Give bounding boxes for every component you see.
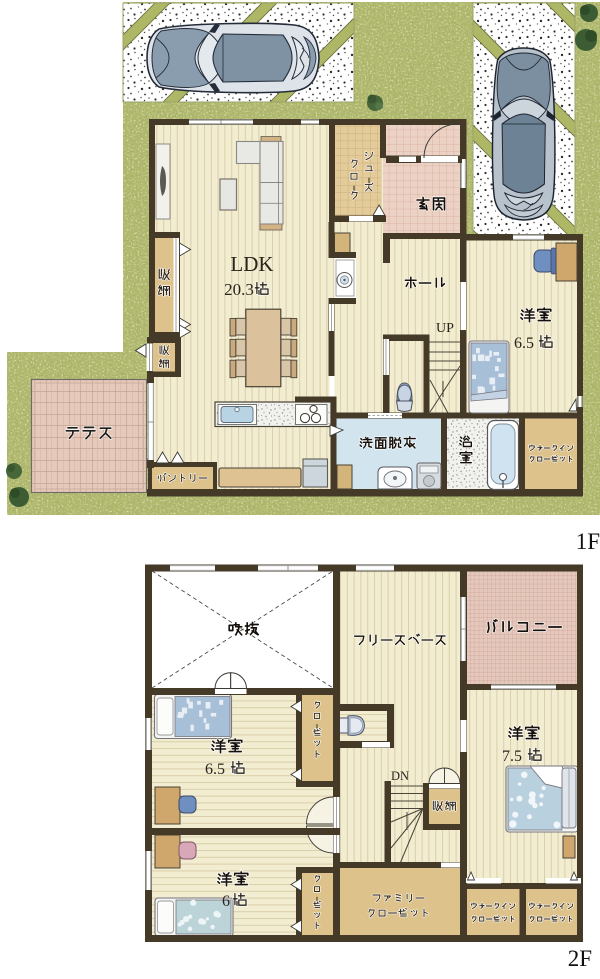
svg-text:LDK: LDK <box>230 252 273 276</box>
svg-text:UP: UP <box>436 321 454 336</box>
svg-text:6.5: 6.5 <box>514 335 534 352</box>
svg-text:1F: 1F <box>576 529 600 554</box>
svg-text:6: 6 <box>222 893 230 910</box>
svg-text:7.5: 7.5 <box>502 748 522 765</box>
svg-text:6.5: 6.5 <box>205 761 225 778</box>
svg-text:2F: 2F <box>568 946 592 971</box>
svg-text:DN: DN <box>391 769 409 783</box>
svg-text:20.3: 20.3 <box>224 280 254 299</box>
